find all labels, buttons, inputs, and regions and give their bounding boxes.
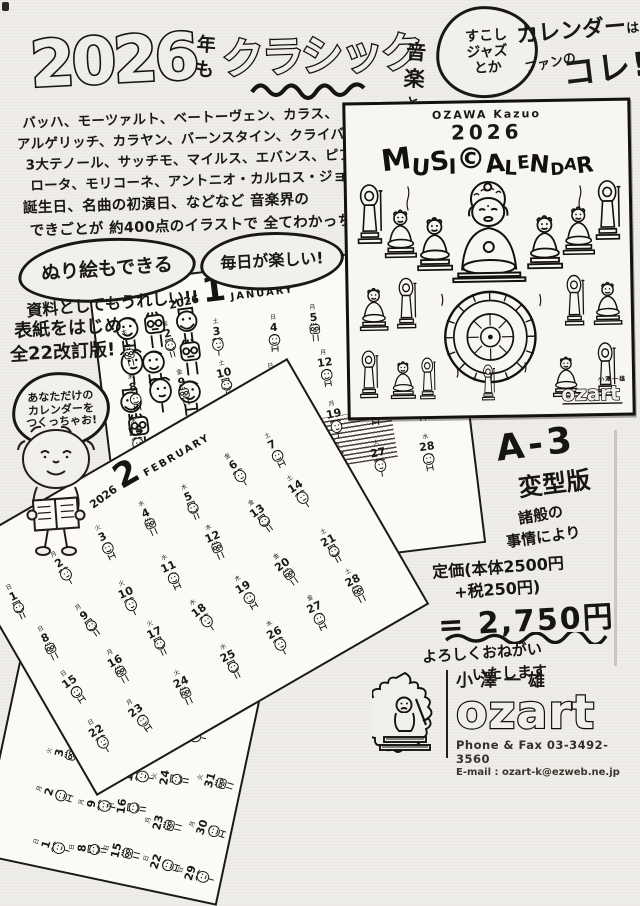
face-b-icon	[351, 583, 368, 604]
day-cell: 月16	[94, 642, 142, 692]
headline-year: 2026	[26, 12, 216, 104]
day-cell: 火10	[105, 574, 152, 623]
face-d-icon	[95, 734, 113, 754]
face-b-icon	[211, 541, 227, 561]
poster-title-letter: A	[484, 150, 506, 177]
face-c-icon	[257, 513, 276, 534]
caricature-face-icon	[213, 773, 237, 796]
poster-title-letter: N	[529, 151, 551, 177]
face-a-icon	[242, 591, 260, 611]
poster-title-letter: M	[380, 144, 413, 177]
day-cell: 金13	[237, 491, 287, 542]
face-d-icon	[295, 490, 313, 510]
footer-email: E-mail : ozart-k@ezweb.ne.jp	[456, 767, 640, 778]
day-cell: 金6	[212, 445, 261, 496]
fudo-myoo-icon	[372, 668, 438, 758]
face-a-icon	[271, 449, 288, 469]
face-a-icon	[207, 825, 227, 840]
day-cell: 水25	[207, 638, 254, 687]
day-cell: 月23	[142, 804, 187, 846]
day-cell: 木26	[253, 614, 301, 664]
face-d-icon	[124, 597, 141, 617]
face-b-icon	[310, 322, 321, 341]
face-a-icon	[320, 369, 333, 388]
face-a-icon	[135, 714, 154, 734]
statue-stand-icon	[596, 181, 622, 239]
day-cell: 木19	[222, 568, 271, 618]
day-cell: 月9	[63, 595, 113, 646]
caricature-face-icon	[370, 457, 392, 480]
svg-text:ozart: ozart	[561, 383, 620, 406]
footer-divider	[446, 670, 448, 758]
caricature-face-icon	[174, 386, 196, 409]
face-a-icon	[55, 789, 75, 804]
poster-title-letter: S	[428, 148, 451, 177]
statue-sit-icon	[385, 210, 416, 257]
statue-sit-icon	[563, 207, 594, 254]
statue-stand-icon	[397, 278, 417, 328]
statue-sit-icon	[594, 282, 622, 324]
poster: OZAWA Kazuo 2026 MUSI©ALENDAR 小澤一雄 ozart	[342, 98, 636, 421]
day-cell: 木12	[192, 519, 238, 568]
day-cell: 月23	[114, 691, 164, 742]
scanned-flyer: { "headline": { "year": "2026", "year_su…	[0, 0, 640, 766]
headline-year-suffix: 年 も	[194, 29, 217, 82]
footer-logo-block: 小澤一雄 ozart Phone & Fax 03-3492-3560 E-ma…	[372, 662, 640, 764]
face-d-icon	[199, 613, 218, 633]
day-cell: 土21	[307, 521, 355, 571]
face-c-icon	[84, 618, 103, 639]
day-cell: 月2	[32, 772, 79, 816]
mandala-icon	[444, 291, 536, 383]
face-b-icon	[44, 641, 61, 662]
caricature-face-icon	[126, 798, 148, 818]
face-a-icon	[129, 393, 143, 412]
face-d-icon	[374, 459, 388, 478]
poster-title-letter: L	[504, 157, 518, 178]
offer-size-format: 変型版	[516, 460, 592, 504]
statue-sit-icon	[527, 216, 562, 269]
face-b-icon	[178, 387, 191, 407]
day-cell: 火27	[359, 438, 400, 482]
face-b-icon	[143, 516, 159, 536]
day-cell: 水11	[148, 548, 195, 597]
caricature-face-icon	[265, 332, 284, 353]
headline: 2026 年 も クラシック 音 楽 と すこしジャズとか カレンダーは ファン…	[0, 0, 640, 105]
face-b-icon	[123, 347, 136, 367]
caricature-face-icon	[120, 843, 144, 865]
statue-stand-icon	[420, 358, 436, 399]
day-cell: 金27	[294, 589, 341, 638]
face-c-icon	[127, 802, 146, 814]
caricature-face-icon	[306, 322, 326, 344]
face-a-icon	[69, 684, 88, 704]
day-number: 3	[212, 325, 221, 337]
poster-year: 2026	[346, 118, 628, 147]
day-cell: 火31	[193, 760, 239, 803]
day-cell: 月12	[306, 348, 345, 391]
day-cell: 土28	[331, 562, 379, 611]
day-cell: 日15	[101, 831, 146, 873]
caricature-face-icon	[316, 367, 337, 390]
day-cell: 土7	[252, 426, 300, 475]
face-c-icon	[153, 636, 170, 657]
buddha-icon	[452, 181, 526, 282]
day-cell: 火17	[134, 614, 181, 663]
day-cell: 水4	[125, 495, 172, 544]
footer-logo: ozart	[456, 689, 640, 737]
day-cell: 日22	[75, 711, 124, 761]
face-a-icon	[167, 571, 184, 591]
face-c-icon	[164, 339, 178, 359]
face-d-icon	[212, 337, 224, 356]
caricature-face-icon	[119, 346, 141, 370]
face-c-icon	[11, 600, 28, 621]
day-number: 9	[85, 799, 98, 809]
headline-kore: コレ!	[559, 37, 640, 95]
scan-speck	[2, 2, 9, 11]
caricature-face-icon	[207, 539, 231, 565]
face-b-icon	[121, 847, 141, 860]
face-c-icon	[170, 774, 190, 787]
svg-text:ozart: ozart	[456, 689, 595, 737]
day-cell: 火24	[160, 664, 206, 712]
callout-revision-2: 全22改訂版!	[9, 335, 115, 366]
caricature-face-icon	[193, 866, 218, 889]
statue-sit-icon	[417, 218, 452, 271]
face-a-icon	[313, 612, 330, 632]
footer-name: 小澤一雄	[456, 666, 640, 691]
day-cell: 金20	[261, 544, 311, 595]
face-d-icon	[273, 637, 291, 657]
face-b-icon	[214, 777, 234, 791]
caricature-face-icon	[169, 770, 191, 791]
caricature-face-icon	[162, 816, 186, 838]
day-cell: 土14	[274, 467, 323, 518]
day-number: 4	[270, 321, 278, 333]
day-number: 5	[310, 311, 319, 323]
face-b-icon	[282, 566, 300, 586]
offer-note-2: 事情により	[505, 521, 582, 552]
wavy-underline	[252, 84, 364, 98]
caricature-face-icon	[52, 785, 77, 808]
statue-stand-icon	[360, 351, 379, 398]
poster-title: MUSI©ALENDAR	[346, 144, 628, 179]
statue-stand-icon	[358, 185, 384, 243]
day-cell: 火24	[150, 759, 193, 798]
day-cell: 日4	[256, 313, 292, 353]
svg-text:2026: 2026	[28, 20, 198, 103]
face-c-icon	[326, 544, 343, 565]
poster-logo-block: 小澤一雄 ozart	[560, 374, 627, 410]
day-cell: 月5	[296, 303, 334, 345]
caricature-face-icon	[208, 336, 228, 358]
footer-phone: Phone & Fax 03-3492-3560	[456, 738, 640, 766]
face-a-icon	[269, 334, 281, 352]
author-character-illustration	[0, 415, 112, 560]
day-cell: 月30	[185, 807, 232, 851]
svg-text:クラシック: クラシック	[221, 28, 422, 84]
day-cell: 日15	[48, 661, 98, 712]
day-cell: 木5	[168, 478, 214, 526]
face-c-icon	[226, 660, 243, 681]
statue-sit-icon	[391, 362, 415, 399]
caricature-face-icon	[204, 821, 229, 844]
day-cell: 日29	[174, 853, 221, 897]
poster-title-letter: ©	[455, 143, 486, 174]
jazz-bubble-line: とか	[466, 59, 509, 77]
intro-paragraph: バッハ、モーツァルト、ベートーヴェン、カラス、アルゲリッチ、カラヤン、バーンスタ…	[22, 103, 376, 243]
day-cell: 水18	[177, 591, 227, 642]
face-d-icon	[58, 567, 76, 587]
day-cell: 日8	[24, 620, 72, 669]
face-d-icon	[196, 870, 216, 885]
face-c-icon	[186, 500, 202, 521]
face-b-icon	[113, 664, 130, 685]
face-d-icon	[232, 468, 250, 488]
face-b-icon	[163, 820, 183, 833]
day-cell: 日1	[0, 578, 39, 627]
day-cell: 土3	[198, 317, 236, 359]
statue-stand-icon	[565, 275, 585, 325]
face-b-icon	[178, 686, 194, 706]
poster-logo: ozart	[560, 383, 626, 406]
jazz-bubble-line: ジャズ	[466, 43, 509, 61]
offer-block: A-3 変型版 諸般の 事情により 定価(本体2500円 +税250円) = 2…	[420, 420, 640, 670]
statue-sit-icon	[360, 288, 388, 330]
